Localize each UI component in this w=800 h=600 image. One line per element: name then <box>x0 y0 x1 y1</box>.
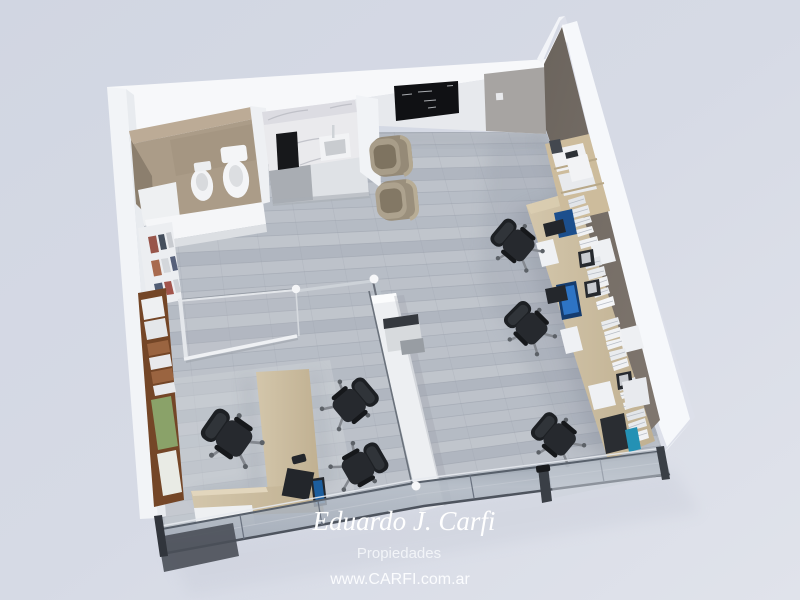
svg-text:www.CARFI.com.ar: www.CARFI.com.ar <box>329 571 470 588</box>
svg-text:Eduardo J. Carfi: Eduardo J. Carfi <box>312 506 496 536</box>
svg-text:Propiedades: Propiedades <box>357 545 441 562</box>
